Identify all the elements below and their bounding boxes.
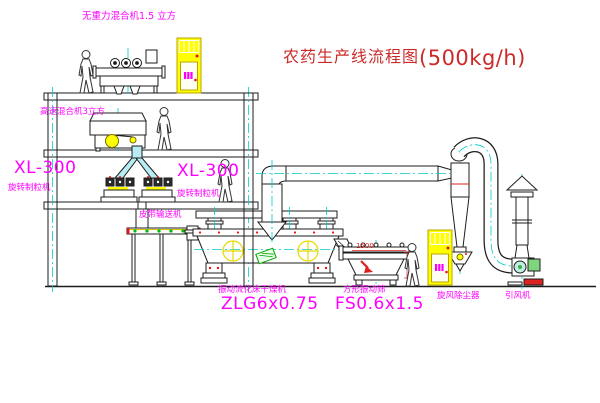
gravity-free-mixer	[93, 48, 165, 96]
sieve-body	[348, 259, 404, 275]
rain-cap	[507, 176, 537, 190]
pulley-small	[130, 137, 136, 143]
dryer-springs	[201, 263, 335, 283]
mixer2-body	[90, 121, 146, 135]
process-flow-diagram: 农药生产线流程图(500kg/h) 无重力混合机1.5 立方 高速混合机3立方 …	[0, 0, 600, 403]
label-belt-conveyor: 皮带输送机	[139, 211, 182, 220]
stack-taper	[515, 245, 529, 258]
label-gravity-mixer: 无重力混合机1.5 立方	[82, 12, 176, 22]
granulator-left-machine	[101, 176, 137, 202]
worker-figure-roof	[79, 51, 93, 94]
floor-slab-3	[44, 202, 258, 209]
cyclone-cone	[451, 197, 469, 247]
stack-duct	[516, 197, 528, 245]
title-capacity: (500kg/h)	[419, 46, 526, 70]
sieve-deck-upper	[343, 247, 409, 252]
label-dryer-model: ZLG6x0.75	[221, 296, 319, 313]
mixer-beam	[96, 68, 162, 76]
roof-slab	[44, 93, 258, 100]
title-text: 农药生产线流程图	[283, 47, 419, 66]
stack-top-flange	[511, 192, 533, 197]
label-fan: 引风机	[505, 292, 531, 301]
granulator-right-machine	[139, 176, 175, 202]
fan-base	[524, 279, 543, 285]
diagram-title: 农药生产线流程图(500kg/h)	[283, 48, 526, 69]
mixer-body	[100, 76, 158, 86]
control-cabinet-upper	[177, 38, 201, 93]
label-granulator-left-model: XL-300	[14, 160, 76, 177]
label-high-speed-mixer: 高速混合机3立方	[40, 108, 105, 117]
cyclone-tip	[456, 264, 464, 271]
sieve-deck-lower	[343, 253, 409, 259]
cyclone-barrel	[451, 163, 469, 197]
control-cabinet-lower	[428, 230, 452, 285]
feed-port	[146, 50, 157, 63]
label-granulator-right-model: XL-300	[177, 163, 239, 180]
induced-draft-fan	[508, 258, 543, 285]
label-sieve-dimension: 1500	[356, 243, 374, 250]
label-sieve-model: FS0.6x1.5	[335, 296, 424, 313]
worker-figure-floor2	[157, 108, 171, 151]
label-granulator-left-name: 旋转制粒机	[8, 184, 51, 193]
label-cyclone: 旋风除尘器	[437, 292, 480, 301]
floor-slab-2	[44, 150, 258, 157]
label-granulator-right-name: 旋转制粒机	[177, 190, 220, 199]
cyclone-flange	[454, 247, 466, 252]
fan-motor	[528, 259, 540, 271]
sieve-base	[354, 275, 398, 280]
pulley-large	[106, 135, 119, 148]
